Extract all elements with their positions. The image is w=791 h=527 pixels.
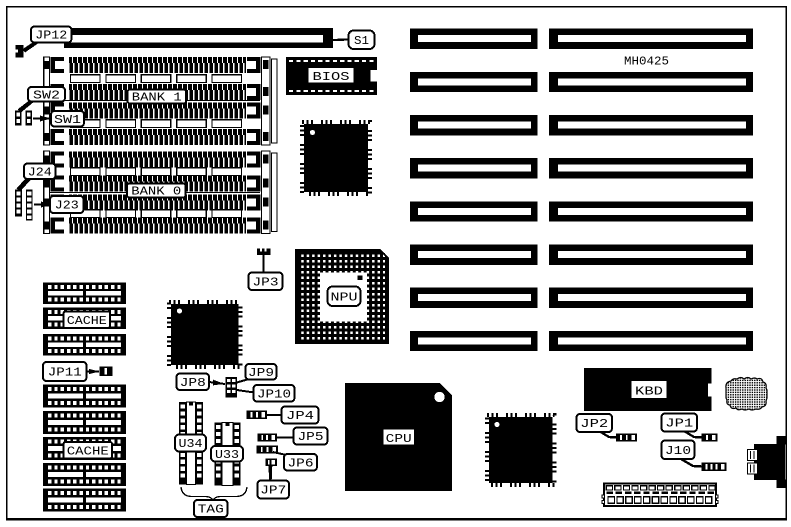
svg-text:JP3: JP3 xyxy=(253,275,279,289)
svg-text:JP7: JP7 xyxy=(260,484,286,498)
svg-text:JP8: JP8 xyxy=(180,376,206,390)
svg-text:JP12: JP12 xyxy=(35,29,67,43)
svg-text:JP4: JP4 xyxy=(286,409,314,423)
svg-text:CACHE: CACHE xyxy=(67,314,107,328)
svg-text:KBD: KBD xyxy=(635,385,663,399)
svg-text:JP2: JP2 xyxy=(580,417,608,431)
svg-text:JP1: JP1 xyxy=(665,417,693,431)
svg-text:BANK 1: BANK 1 xyxy=(132,91,182,105)
svg-text:S1: S1 xyxy=(354,34,369,48)
svg-text:CACHE: CACHE xyxy=(67,444,109,458)
svg-text:NPU: NPU xyxy=(331,290,358,304)
svg-text:TAG: TAG xyxy=(198,503,224,517)
svg-text:SW2: SW2 xyxy=(33,88,60,102)
svg-text:J10: J10 xyxy=(665,444,691,458)
svg-text:MH0425: MH0425 xyxy=(624,55,669,69)
svg-text:JP5: JP5 xyxy=(298,430,324,444)
svg-text:JP9: JP9 xyxy=(248,366,274,380)
svg-text:JP10: JP10 xyxy=(257,387,291,401)
svg-text:U33: U33 xyxy=(215,448,239,462)
svg-text:BANK 0: BANK 0 xyxy=(131,185,181,199)
svg-text:SW1: SW1 xyxy=(54,113,81,127)
svg-text:J24: J24 xyxy=(28,165,52,179)
svg-text:J23: J23 xyxy=(55,199,79,213)
svg-text:JP6: JP6 xyxy=(288,456,314,470)
svg-text:CPU: CPU xyxy=(386,432,412,446)
svg-text:BIOS: BIOS xyxy=(313,70,350,84)
svg-text:U34: U34 xyxy=(179,437,203,451)
svg-text:JP11: JP11 xyxy=(48,366,82,380)
